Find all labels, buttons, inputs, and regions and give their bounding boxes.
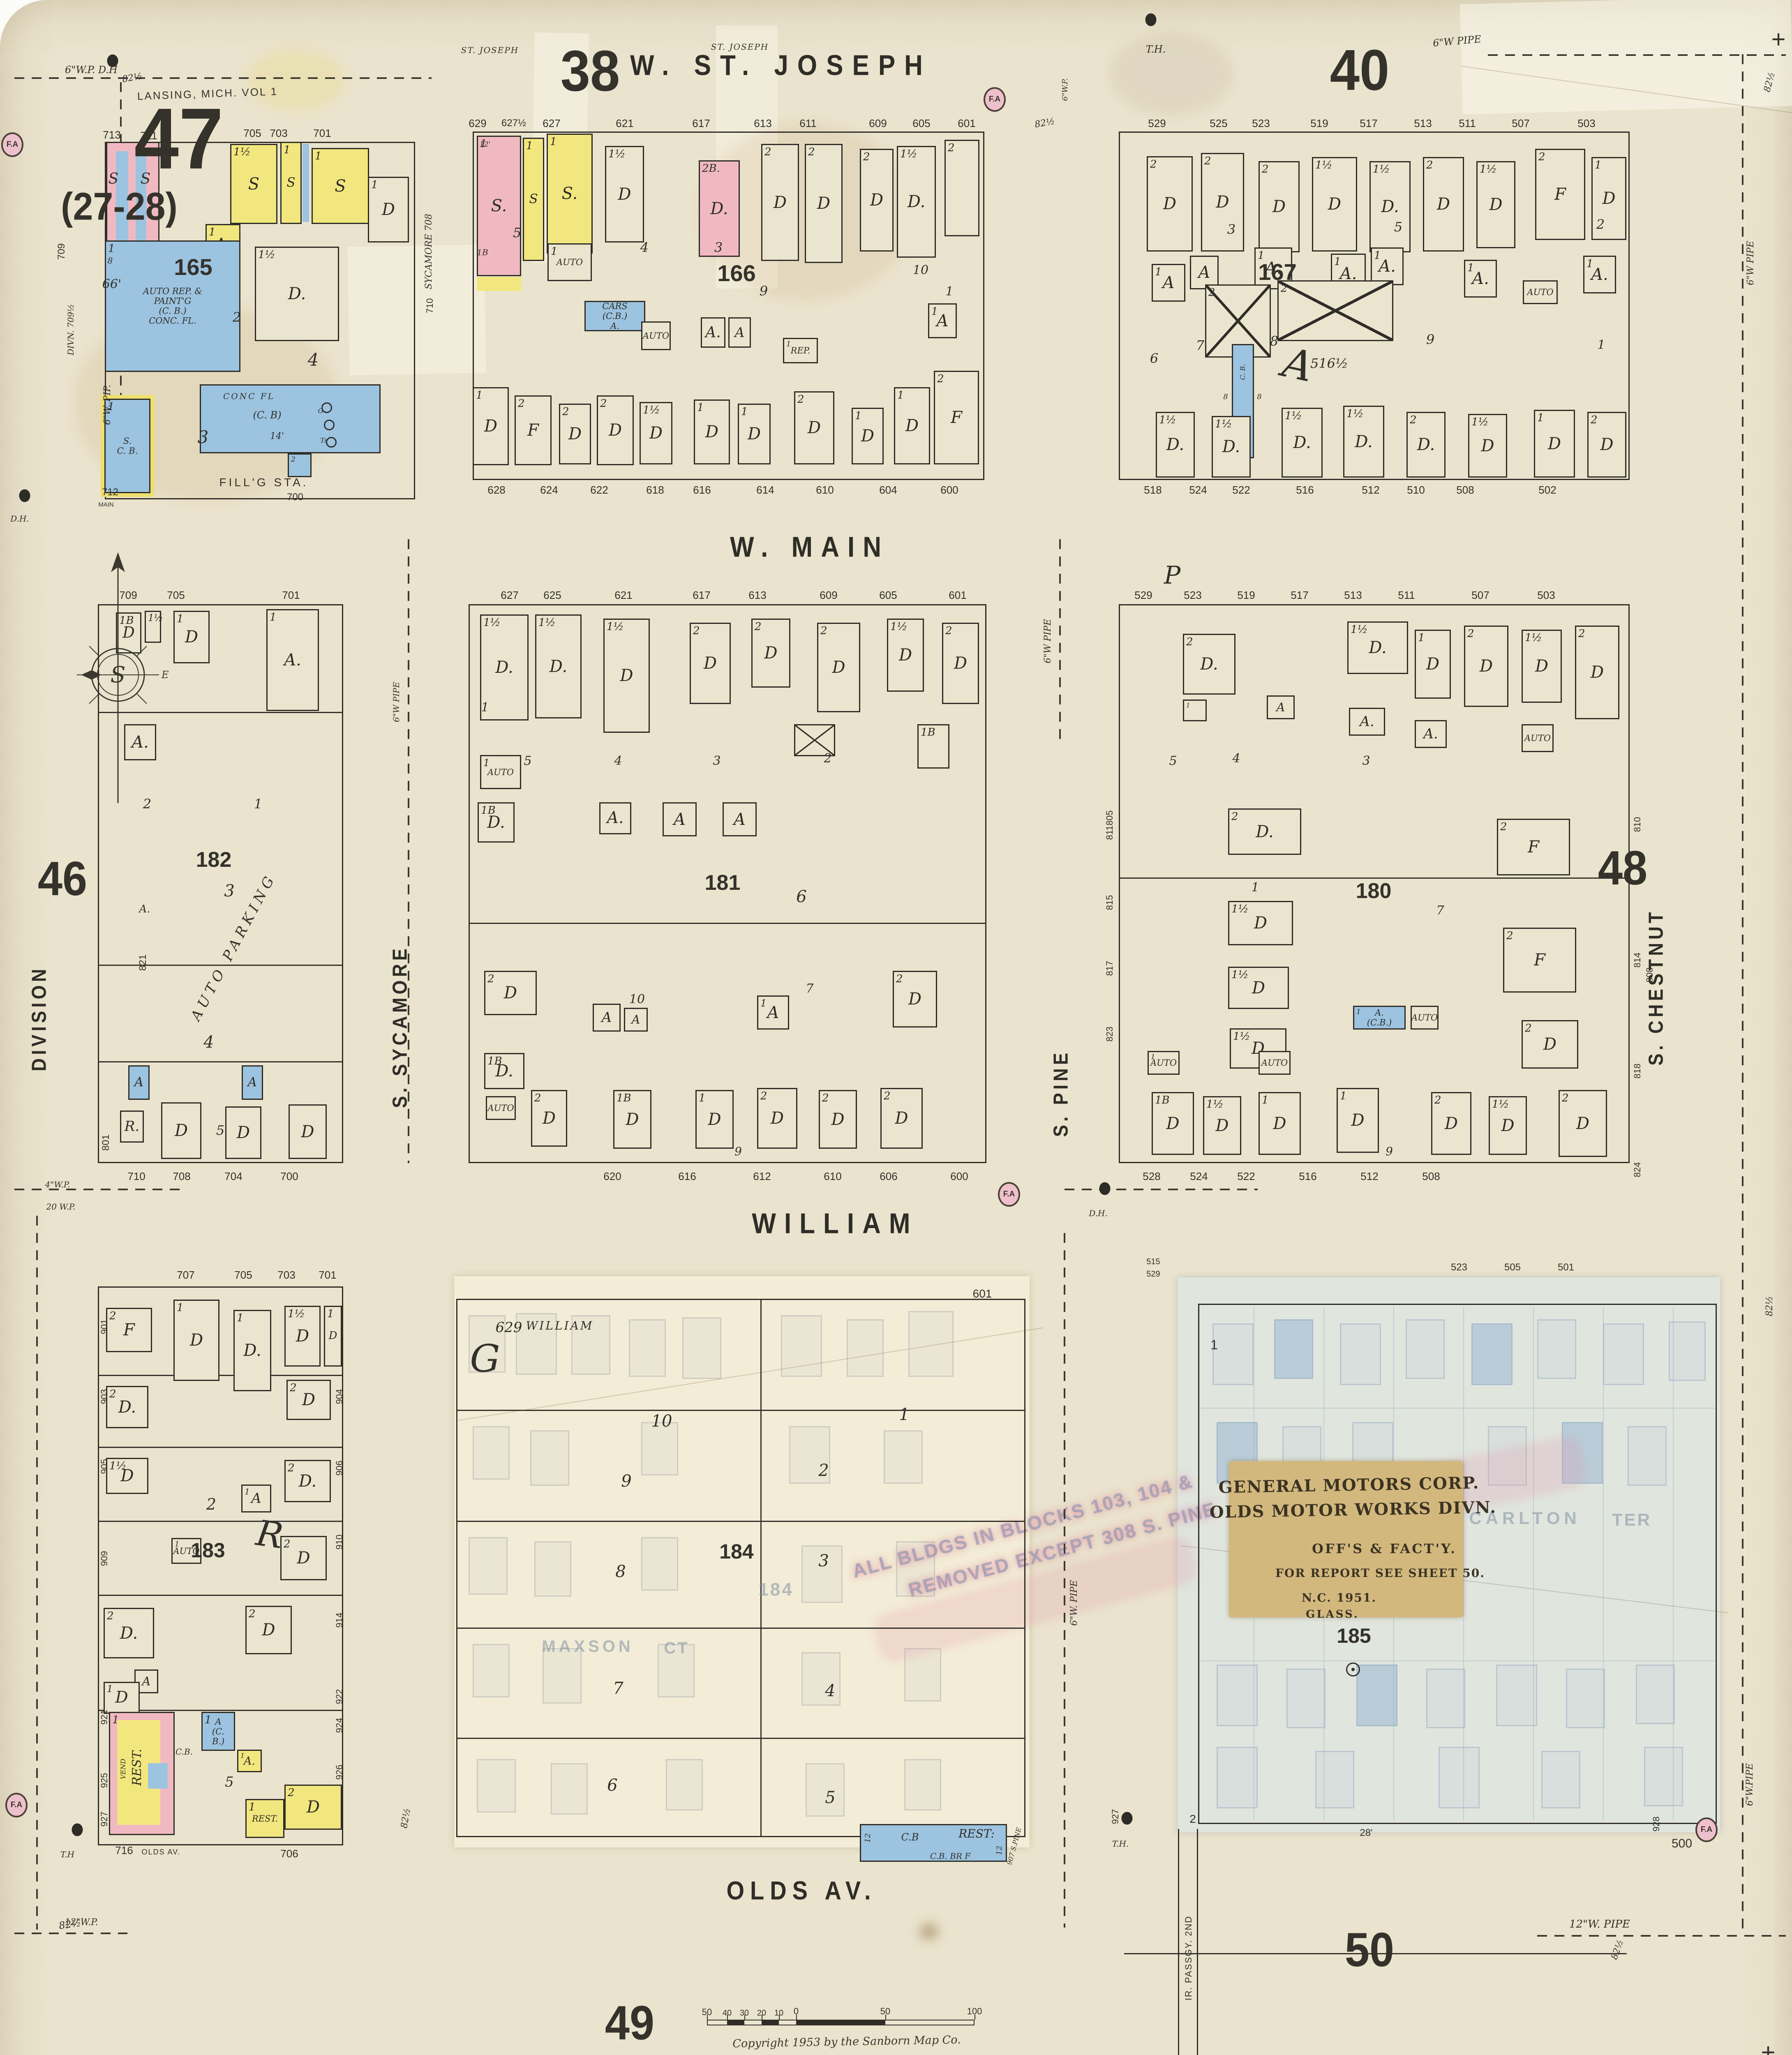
building: D2 xyxy=(1147,156,1193,252)
gas-tank-marker xyxy=(324,420,335,430)
building: D1 xyxy=(738,404,771,464)
water-pipe-line xyxy=(1742,54,1744,1932)
building-label: D xyxy=(484,417,497,436)
map-label: 616 xyxy=(678,1171,696,1182)
building: A.1 xyxy=(1583,256,1616,293)
map-label: 181 xyxy=(705,872,741,894)
map-label: 100 xyxy=(967,2007,982,2016)
building-height: 2 xyxy=(1150,158,1157,171)
building-label: CARS (C.B.) A. xyxy=(600,301,630,331)
building: D2 xyxy=(942,623,979,704)
map-label: 3 xyxy=(713,755,720,767)
map-label: 7 xyxy=(1436,905,1444,917)
map-label: 49 xyxy=(605,1999,654,2047)
water-pipe-line xyxy=(36,1216,38,1930)
map-label: 624 xyxy=(540,485,558,495)
building-height: 2 xyxy=(808,146,815,158)
building: D1B xyxy=(1152,1092,1194,1155)
building-height: 2 xyxy=(562,406,569,418)
building: D1 xyxy=(173,1300,219,1381)
building-height: 1 xyxy=(699,1092,706,1104)
scale-bar-segment xyxy=(762,2020,779,2025)
building-label: D xyxy=(1591,663,1604,682)
map-label: 14' xyxy=(270,432,284,441)
building: D2 xyxy=(893,971,937,1027)
building-height: 2 xyxy=(863,151,870,163)
map-label: 517 xyxy=(1360,118,1377,129)
map-label: 606 xyxy=(880,1171,897,1182)
map-label: 906 xyxy=(335,1461,344,1476)
building-label: D xyxy=(190,1331,203,1350)
map-label: 609 xyxy=(869,118,887,129)
map-label: 611 xyxy=(799,118,816,129)
water-pipe-line xyxy=(14,1933,127,1934)
map-label: 20 xyxy=(757,2009,766,2017)
building-height: 1 xyxy=(483,757,490,769)
map-label: 2 xyxy=(824,753,831,765)
building-label: AUTO REP. & PAINT'G(C. B.)CONC. FL. xyxy=(139,286,206,326)
map-line xyxy=(457,1521,1025,1522)
building-label: D xyxy=(618,185,631,204)
map-label: 705 xyxy=(243,128,261,139)
building-label: A xyxy=(937,312,949,330)
building-height: 1 xyxy=(1334,256,1341,268)
map-label: 805 xyxy=(1105,810,1114,826)
building-label: A. xyxy=(244,1755,255,1767)
building-label: D xyxy=(626,1110,639,1129)
building: D.2 xyxy=(1183,634,1235,695)
map-label: 525 xyxy=(1210,118,1227,129)
building-label: F xyxy=(951,408,962,427)
map-line xyxy=(1197,1829,1198,2055)
map-label: 183 xyxy=(191,1540,225,1561)
map-label: GLASS. xyxy=(1306,1609,1359,1620)
map-label: 617 xyxy=(693,590,710,600)
map-label: 528 xyxy=(1143,1171,1160,1182)
building: D2 xyxy=(1575,626,1619,719)
building: D.2 xyxy=(1228,808,1301,855)
building-label: A. xyxy=(705,324,720,341)
building: AUTO xyxy=(641,321,671,350)
map-label: 518 xyxy=(1144,485,1162,495)
map-line xyxy=(1200,1408,1715,1408)
building-height: 1½ xyxy=(1471,416,1489,428)
building-label: AUTO xyxy=(487,1103,514,1113)
building-height: 1 xyxy=(177,1302,184,1314)
building-height: 1 xyxy=(697,402,704,414)
map-label: 605 xyxy=(912,118,930,129)
map-label: 2 xyxy=(1596,218,1605,231)
map-label: 3 xyxy=(714,241,723,254)
water-pipe-line xyxy=(14,77,432,79)
map-label: 166 xyxy=(717,262,755,285)
water-pipe-line xyxy=(14,1189,181,1190)
map-label: (C. B) xyxy=(253,410,281,420)
map-label: 50 xyxy=(1345,1926,1394,1974)
map-label: 516½ xyxy=(1310,357,1348,370)
building: D1 xyxy=(173,611,210,663)
building: D2 xyxy=(860,149,894,252)
map-label: 712 xyxy=(102,487,118,497)
building: D xyxy=(289,1104,327,1159)
building-height: 2 xyxy=(937,373,944,385)
building: D1½ xyxy=(1228,901,1293,945)
map-label: (27-28) xyxy=(61,187,178,226)
building: D1 xyxy=(104,1682,140,1714)
map-label: 2 xyxy=(206,1496,216,1512)
svg-text:S: S xyxy=(111,662,126,688)
paper-stain xyxy=(247,49,345,111)
building: D2 xyxy=(1522,1020,1578,1069)
building-label: AUTO xyxy=(1261,1058,1288,1068)
map-label: 513 xyxy=(1414,118,1432,129)
building-label: D xyxy=(301,1122,314,1141)
building-height: 1½ xyxy=(1346,408,1364,420)
map-label: 523 xyxy=(1184,590,1201,600)
building-label: D xyxy=(1215,1116,1229,1135)
map-line xyxy=(469,923,986,924)
building-height: 2 xyxy=(284,1538,291,1550)
building-label: D. xyxy=(1256,822,1273,841)
building-label: D xyxy=(1548,434,1561,453)
map-label: 701 xyxy=(319,1270,336,1280)
map-label: VEND xyxy=(120,1759,127,1779)
map-label: 7 xyxy=(806,983,813,995)
building-label: A xyxy=(674,810,686,829)
map-label: 6"W.P. D.H xyxy=(65,65,118,75)
map-label: 614 xyxy=(756,485,774,495)
map-label: Ts xyxy=(320,437,328,444)
map-label: 12"W.P. xyxy=(65,1918,98,1927)
map-label: 28' xyxy=(1360,1828,1372,1838)
map-label: 1B xyxy=(477,248,488,256)
map-label: 9 xyxy=(1386,1146,1393,1157)
hydrant-marker xyxy=(1099,1182,1111,1195)
building xyxy=(148,1763,168,1789)
map-label: 165 xyxy=(174,256,212,279)
map-label: A. xyxy=(139,904,150,914)
map-label: 30 xyxy=(740,2009,749,2017)
building: REP.1 xyxy=(783,338,818,363)
map-label: 925 xyxy=(100,1773,109,1788)
water-pipe-line xyxy=(1059,539,1061,740)
map-label: 927 xyxy=(100,1812,109,1827)
map-label: 627½ xyxy=(501,118,526,128)
building: CARS (C.B.) A. xyxy=(584,301,645,331)
building-label: D. xyxy=(243,1341,261,1360)
building: D1 xyxy=(1259,1092,1301,1155)
building-label: D xyxy=(861,427,874,446)
map-label: 629 xyxy=(496,1321,522,1335)
map-label: 511 xyxy=(1459,118,1476,129)
building-height: 1 xyxy=(245,1487,250,1496)
building: AUTO1 xyxy=(547,243,592,281)
building: S1 xyxy=(523,138,544,261)
building: A xyxy=(723,802,757,836)
building-label: S. xyxy=(491,196,507,215)
building: D xyxy=(225,1106,261,1159)
building-height: 1B xyxy=(487,1055,502,1067)
building-label: A xyxy=(134,1075,143,1090)
building-label: D. xyxy=(1355,432,1372,451)
map-label: GENERAL MOTORS CORP. xyxy=(1218,1475,1480,1496)
map-label: 512 xyxy=(1360,1171,1378,1182)
building-label: D xyxy=(115,1689,128,1707)
map-label: 600 xyxy=(940,485,958,495)
building-label: REST. xyxy=(252,1813,278,1823)
building-height: 1½ xyxy=(1215,418,1232,430)
building-height: 1 xyxy=(1374,249,1381,262)
map-label: 927 xyxy=(1111,1809,1120,1824)
map-label: 910 xyxy=(335,1535,344,1550)
building-label: D xyxy=(1437,195,1450,214)
building: A. (C.B.)1 xyxy=(1353,1006,1406,1030)
map-label: 709 xyxy=(57,243,67,260)
map-line xyxy=(457,1410,1025,1411)
building-label: S.C. B. xyxy=(117,436,138,456)
building: D1½ xyxy=(1489,1096,1527,1155)
map-label: 705 xyxy=(234,1270,252,1280)
building-label: D xyxy=(1600,435,1613,454)
building-label: D xyxy=(1445,1114,1458,1133)
hydrant-marker xyxy=(19,490,30,502)
map-label: 1 xyxy=(1251,882,1259,894)
building-height: 1½ xyxy=(890,621,908,633)
map-label: CONC FL xyxy=(223,392,275,400)
map-label: 708 xyxy=(173,1171,190,1182)
building: D2 xyxy=(761,144,799,261)
building: D2 xyxy=(245,1606,292,1654)
building-label: D xyxy=(543,1109,556,1128)
map-label: 924 xyxy=(335,1718,344,1733)
building-label: D xyxy=(954,654,967,673)
building: D2 xyxy=(484,971,537,1015)
building-height: 2 xyxy=(945,625,952,637)
building-height: 1½ xyxy=(109,1460,127,1472)
building: D.2 xyxy=(1406,412,1446,478)
building-height: 1 xyxy=(786,340,791,349)
building-height: 1½ xyxy=(643,404,660,416)
building: AUTO xyxy=(1523,280,1558,304)
building-label: D xyxy=(1543,1035,1556,1054)
building-label: D xyxy=(1252,979,1265,997)
building-height: 2 xyxy=(896,973,903,985)
building: A xyxy=(728,317,751,348)
map-label: 704 xyxy=(224,1171,242,1182)
building-label: REP. xyxy=(791,346,811,356)
map-label: S xyxy=(109,172,119,187)
map-label: 524 xyxy=(1189,485,1207,495)
building: A. xyxy=(1415,720,1447,748)
map-line xyxy=(457,1628,1025,1629)
building-height: 2 xyxy=(107,1610,114,1622)
hydrant-marker xyxy=(72,1824,83,1836)
map-label: 601 xyxy=(949,590,966,600)
building: A. xyxy=(599,802,631,834)
building-label: D xyxy=(764,644,777,663)
building: D1½ xyxy=(640,402,672,464)
building-label: D xyxy=(1166,1114,1179,1133)
building-label: D xyxy=(1489,195,1502,214)
map-label: 6"W.P. xyxy=(1062,79,1069,101)
building-label: A xyxy=(248,1075,257,1090)
map-label: 705 xyxy=(167,590,185,600)
building-height: 1 xyxy=(107,1684,113,1695)
map-label: WILLIAM xyxy=(526,1320,594,1332)
building-height: 1 xyxy=(1467,262,1474,274)
map-label: W. ST. JOSEPH xyxy=(630,51,932,80)
map-label: 516 xyxy=(1299,1171,1316,1182)
map-label: 512 xyxy=(1362,485,1379,495)
map-label: 703 xyxy=(277,1270,295,1280)
map-label: REST: xyxy=(958,1828,995,1840)
building-label: A xyxy=(632,1013,640,1026)
map-label: W. MAIN xyxy=(730,533,889,561)
map-label: 3 xyxy=(198,429,209,446)
building: AUTO REP. & PAINT'G(C. B.)CONC. FL.1 xyxy=(105,240,240,372)
building-height: 2 xyxy=(1467,628,1474,640)
building-label: D xyxy=(905,416,919,435)
map-label: 604 xyxy=(879,485,897,495)
building: AUTO1 xyxy=(480,755,521,789)
building: 1 xyxy=(1183,700,1207,721)
map-label: 4 xyxy=(203,1034,214,1051)
building: D2 xyxy=(757,1088,797,1149)
building-height: 1 xyxy=(270,611,277,623)
map-label: 621 xyxy=(614,590,632,600)
map-label: 4 xyxy=(640,241,649,254)
building: D1 xyxy=(852,408,884,464)
map-label: 628 xyxy=(487,485,505,495)
building-label: A. xyxy=(1423,726,1438,742)
building: D.2 xyxy=(106,1386,148,1428)
map-label: 613 xyxy=(748,590,766,600)
map-label: 9 xyxy=(760,284,768,298)
building: D.1B xyxy=(484,1053,524,1089)
building-label: D xyxy=(895,1109,908,1128)
building-label: D xyxy=(908,990,921,1009)
map-label: 184 xyxy=(758,1581,793,1599)
building-label: D. xyxy=(1417,435,1435,454)
map-label: G xyxy=(470,1340,500,1378)
building-label: D. xyxy=(710,199,728,218)
map-label: 1 xyxy=(1597,339,1605,351)
building: S1 xyxy=(312,148,369,224)
building-label: D. xyxy=(118,1398,136,1417)
map-line xyxy=(98,1375,343,1376)
map-label: 600 xyxy=(950,1171,968,1182)
building-label: F xyxy=(123,1321,135,1339)
building-height: 2 xyxy=(109,1310,116,1322)
building: A(C. B.)1 xyxy=(201,1712,235,1751)
building: AUTO xyxy=(1259,1051,1291,1075)
building-label: A xyxy=(767,1003,779,1022)
building: A.1 xyxy=(237,1750,262,1772)
building-label: D xyxy=(708,1110,721,1129)
map-label: 810 xyxy=(1633,817,1642,832)
map-label: 710 xyxy=(127,1171,145,1182)
building: D.1½ xyxy=(1347,621,1408,674)
building-height: 1½ xyxy=(288,1308,305,1320)
map-label: 502 xyxy=(1538,485,1556,495)
building-label: S xyxy=(248,175,259,194)
building-label: D xyxy=(649,424,663,443)
building-height: 2 xyxy=(1500,821,1507,833)
map-label: 922 xyxy=(335,1689,344,1704)
map-label: 926 xyxy=(335,1765,344,1780)
building: D1½ xyxy=(603,619,650,733)
map-label: TER xyxy=(1612,1511,1651,1529)
map-label: 82½ xyxy=(1034,117,1055,129)
building-label: A. xyxy=(1591,265,1608,284)
map-label: 3 xyxy=(1227,223,1235,236)
building: D1½ xyxy=(1312,157,1357,252)
paper-stain xyxy=(1110,33,1233,115)
map-label: 182 xyxy=(196,849,232,870)
map-label: C.B. xyxy=(176,1748,193,1756)
building-height: 2B. xyxy=(702,162,720,175)
map-label: 8 xyxy=(615,1563,626,1580)
map-label: 66' xyxy=(102,278,121,291)
map-label: 10 xyxy=(774,2009,783,2017)
building: D1½ xyxy=(1476,161,1515,248)
map-label: + xyxy=(1761,2040,1775,2055)
building-height: 1 xyxy=(476,389,483,402)
map-label: 1 xyxy=(945,286,953,298)
building: D.1½ xyxy=(1282,408,1323,478)
building-label: A xyxy=(1163,273,1175,292)
map-label: 508 xyxy=(1456,485,1474,495)
map-label: 9 xyxy=(621,1473,631,1489)
map-label: 6"W. PIPE xyxy=(1070,1580,1079,1626)
building-height: 2 xyxy=(1208,286,1215,299)
building-label: D xyxy=(1426,655,1439,674)
building-label: F xyxy=(1554,185,1566,204)
hydrant-marker xyxy=(1122,1812,1133,1825)
building-label: S xyxy=(335,177,346,196)
building: D1 xyxy=(1337,1088,1379,1153)
map-label: 507 xyxy=(1512,118,1529,129)
map-label: 529 xyxy=(1148,118,1166,129)
scale-bar-segment xyxy=(796,2020,885,2025)
building: F2 xyxy=(515,395,552,465)
map-label: 821 xyxy=(138,954,148,971)
building-height: 2 xyxy=(1525,1022,1532,1034)
map-label: 20 W.P. xyxy=(46,1203,76,1211)
building: 2 xyxy=(288,453,312,477)
building: D2 xyxy=(280,1536,327,1580)
building-label: F xyxy=(1528,838,1539,857)
building-height: 2 xyxy=(518,397,525,410)
map-label: D.H. xyxy=(10,515,29,523)
building: D1½ xyxy=(1203,1096,1241,1155)
map-label: C.B. BR F xyxy=(930,1852,970,1860)
building-label: A. xyxy=(1360,713,1374,730)
map-label: 627 xyxy=(501,590,518,600)
map-label: 6"W PIPE xyxy=(1044,619,1053,663)
map-label: 12' xyxy=(480,141,490,148)
building-label: D xyxy=(1576,1114,1589,1133)
map-label: 82½ xyxy=(122,72,143,84)
compass-rose: S E xyxy=(65,552,171,817)
building-height: 1 xyxy=(1537,412,1544,424)
water-pipe-line xyxy=(1065,1189,1258,1190)
building-height: 1 xyxy=(284,144,291,156)
map-label: S. PINE xyxy=(1051,1050,1071,1137)
map-label: 12 xyxy=(864,1833,872,1843)
building-height: 1½ xyxy=(258,249,275,261)
map-label: 8 xyxy=(1257,393,1261,401)
